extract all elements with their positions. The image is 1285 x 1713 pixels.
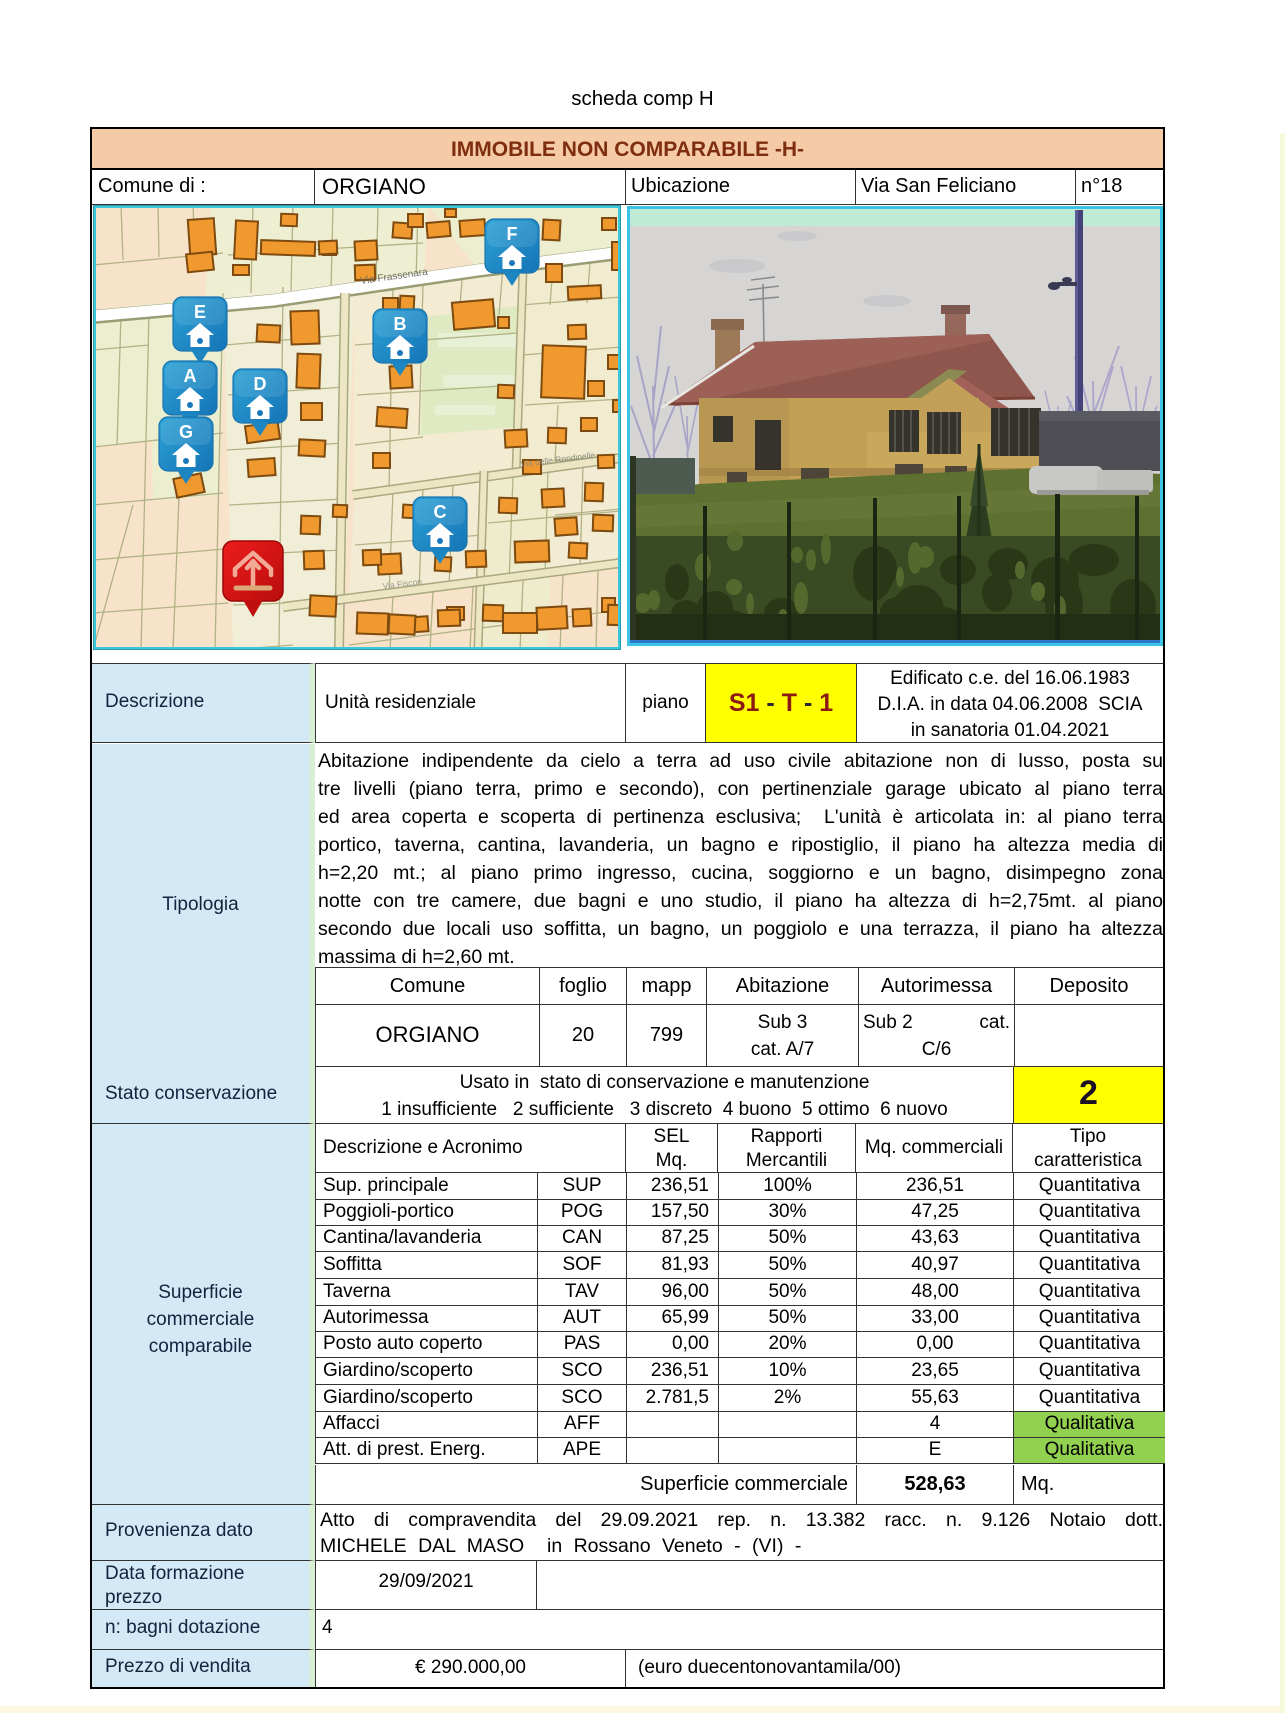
svg-text:B: B — [394, 314, 407, 334]
svg-text:C: C — [434, 502, 447, 522]
svg-text:A: A — [184, 366, 197, 386]
svg-text:E: E — [194, 302, 206, 322]
svg-text:D: D — [254, 374, 267, 394]
svg-text:F: F — [507, 224, 518, 244]
svg-text:G: G — [179, 422, 193, 442]
